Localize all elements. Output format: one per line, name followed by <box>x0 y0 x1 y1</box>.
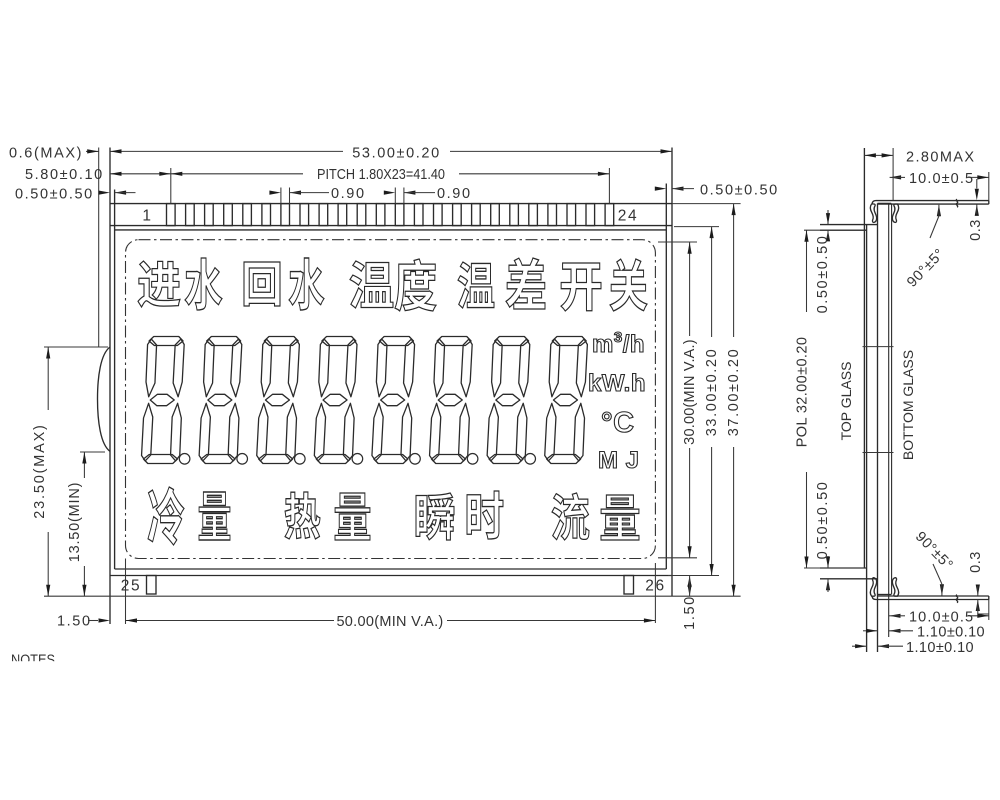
svg-text:0.90: 0.90 <box>437 186 472 202</box>
svg-text:BOTTOM GLASS: BOTTOM GLASS <box>900 350 916 460</box>
svg-text:0.50±0.50: 0.50±0.50 <box>815 481 831 560</box>
svg-text:10.0±0.5: 10.0±0.5 <box>909 609 974 625</box>
svg-text:1.50: 1.50 <box>57 614 92 630</box>
svg-text:1.10±0.10: 1.10±0.10 <box>917 625 985 641</box>
svg-text:M J: M J <box>598 447 640 474</box>
svg-text:23.50(MAX): 23.50(MAX) <box>32 423 48 518</box>
svg-text:0.50±0.50: 0.50±0.50 <box>815 235 831 314</box>
svg-text:0.3: 0.3 <box>968 219 984 241</box>
svg-text:1.10±0.10: 1.10±0.10 <box>906 640 974 656</box>
svg-text:1: 1 <box>142 208 152 225</box>
svg-text:0.50±0.50: 0.50±0.50 <box>15 186 94 202</box>
svg-text:5.80±0.10: 5.80±0.10 <box>25 167 104 183</box>
svg-text:37.00±0.20: 37.00±0.20 <box>726 348 742 436</box>
svg-text:0.90: 0.90 <box>331 186 366 202</box>
svg-text:33.00±0.20: 33.00±0.20 <box>704 348 720 436</box>
svg-text:°C: °C <box>601 407 635 439</box>
svg-text:0.6(MAX): 0.6(MAX) <box>9 146 83 162</box>
svg-text:PITCH 1.80X23=41.40: PITCH 1.80X23=41.40 <box>317 167 445 183</box>
svg-text:10.0±0.5: 10.0±0.5 <box>909 171 974 187</box>
svg-text:13.50(MIN): 13.50(MIN) <box>67 482 83 563</box>
svg-text:POL 32.00±0.20: POL 32.00±0.20 <box>795 337 811 448</box>
svg-text:1.50: 1.50 <box>682 595 698 630</box>
svg-text:50.00(MIN V.A.): 50.00(MIN V.A.) <box>336 614 443 630</box>
svg-text:0.3: 0.3 <box>968 551 984 573</box>
svg-text:53.00±0.20: 53.00±0.20 <box>352 146 440 162</box>
svg-text:24: 24 <box>618 208 638 225</box>
svg-text:2.80MAX: 2.80MAX <box>906 149 975 165</box>
svg-text:30.00(MIN V.A.): 30.00(MIN V.A.) <box>682 339 698 445</box>
svg-text:kW.h: kW.h <box>588 370 646 397</box>
svg-text:TOP GLASS: TOP GLASS <box>838 362 854 441</box>
svg-text:25: 25 <box>121 578 141 595</box>
svg-text:0.50±0.50: 0.50±0.50 <box>700 182 779 198</box>
